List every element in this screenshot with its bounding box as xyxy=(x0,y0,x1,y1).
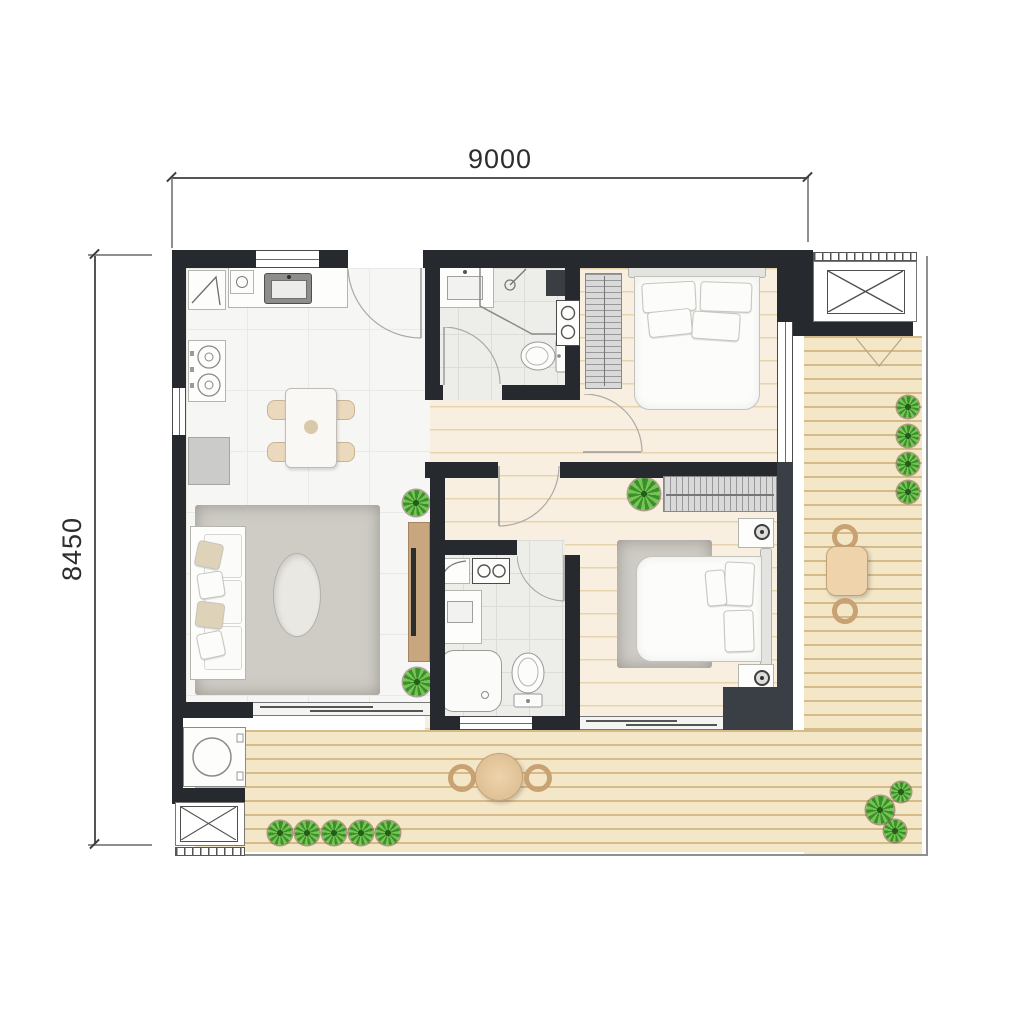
dimension-left-label: 8450 xyxy=(55,491,89,607)
bedroom1-balcony-window xyxy=(777,322,793,462)
tv xyxy=(411,548,416,636)
bathroom2-window xyxy=(460,716,532,730)
plant-icon xyxy=(897,425,919,447)
plant-icon xyxy=(897,453,919,475)
shower-tray xyxy=(440,650,502,712)
plant-icon xyxy=(628,478,660,510)
refrigerator xyxy=(188,437,230,485)
plant-icon xyxy=(897,481,919,503)
dimension-line-left xyxy=(94,255,96,845)
extension-line xyxy=(171,178,173,248)
table-decor xyxy=(304,420,318,434)
bed-pillow xyxy=(704,569,727,607)
bedroom2-door-arc xyxy=(498,466,560,528)
balcony-round-table xyxy=(475,753,523,801)
wall xyxy=(723,687,793,730)
counter-hob xyxy=(230,270,254,294)
wall xyxy=(430,478,445,730)
wall xyxy=(565,268,580,300)
plant-icon xyxy=(268,821,292,845)
balcony-railing-right xyxy=(926,256,928,856)
bed-pillow xyxy=(723,561,755,607)
living-window xyxy=(172,388,186,435)
throw-pillow xyxy=(195,600,226,629)
wall xyxy=(177,702,253,718)
flue-shaft xyxy=(188,270,226,310)
bath2-toilet xyxy=(508,650,548,712)
entry-door-arc xyxy=(348,268,423,341)
bedroom1-wardrobe xyxy=(585,273,622,389)
bed-pillow xyxy=(647,308,693,338)
faucet-icon xyxy=(287,275,291,279)
wall xyxy=(172,250,186,388)
balcony-square-table xyxy=(826,546,868,596)
plant-icon xyxy=(891,782,911,802)
plant-icon xyxy=(403,668,431,696)
plant-icon xyxy=(897,396,919,418)
throw-pillow xyxy=(196,570,226,600)
balcony-window-swing-mark xyxy=(856,338,902,368)
dimension-line-top xyxy=(172,177,809,179)
throw-pillow xyxy=(196,630,227,661)
bathroom2-door-arc xyxy=(517,555,565,603)
wall xyxy=(423,250,793,268)
plant-icon xyxy=(349,821,373,845)
wall xyxy=(532,716,565,730)
vanity-sink-basin xyxy=(447,601,473,623)
bedroom2-wardrobe xyxy=(663,476,777,512)
shower-drain xyxy=(481,691,489,699)
laundry-stack xyxy=(556,300,580,346)
bedroom1-door-arc xyxy=(583,394,643,454)
bed-pillow xyxy=(699,281,752,313)
bathroom1-door-arc xyxy=(443,327,501,385)
wall xyxy=(425,385,443,400)
extension-line xyxy=(88,844,152,846)
wall xyxy=(777,250,793,322)
balcony-chair xyxy=(524,764,552,792)
plant-icon xyxy=(884,820,906,842)
wall xyxy=(777,462,793,687)
floor-plan xyxy=(172,250,932,862)
ac-unit-box xyxy=(827,270,905,314)
plant-icon xyxy=(322,821,346,845)
wall xyxy=(793,322,913,336)
bed-pillow xyxy=(723,609,754,652)
plant-icon xyxy=(376,821,400,845)
sink-basin xyxy=(271,280,307,299)
extension-line xyxy=(807,178,809,242)
faucet-icon xyxy=(463,270,467,274)
louver-vent xyxy=(175,847,245,856)
plant-icon xyxy=(295,821,319,845)
wall xyxy=(565,346,580,400)
balcony-chair xyxy=(448,764,476,792)
kitchen-sink xyxy=(264,273,312,304)
wall xyxy=(319,250,348,268)
balcony-railing-bottom xyxy=(192,854,928,856)
kitchen-window xyxy=(256,250,319,268)
wall xyxy=(565,555,580,730)
balcony-chair xyxy=(832,598,858,624)
washing-machine xyxy=(183,727,246,787)
bed-pillow xyxy=(691,310,741,341)
bedroom2-balcony-sliding-door xyxy=(580,716,723,730)
wall xyxy=(425,268,440,400)
wall xyxy=(172,435,186,702)
washer-knob-panel xyxy=(472,558,510,584)
living-balcony-sliding-door xyxy=(253,702,430,716)
throw-pillow xyxy=(194,540,225,571)
plant-icon xyxy=(866,796,894,824)
dimension-top-label: 9000 xyxy=(420,144,580,175)
table-lamp-icon xyxy=(754,670,770,686)
extension-line xyxy=(88,254,152,256)
louver-vent xyxy=(813,252,917,261)
plant-icon xyxy=(403,490,429,516)
gas-stove xyxy=(188,340,226,402)
coffee-table xyxy=(273,553,321,637)
wall xyxy=(793,250,813,322)
hob-burner xyxy=(236,276,248,288)
wall xyxy=(172,702,183,790)
wall xyxy=(425,462,498,478)
ac-unit-box xyxy=(180,806,238,842)
wall xyxy=(430,716,460,730)
table-lamp-icon xyxy=(754,524,770,540)
